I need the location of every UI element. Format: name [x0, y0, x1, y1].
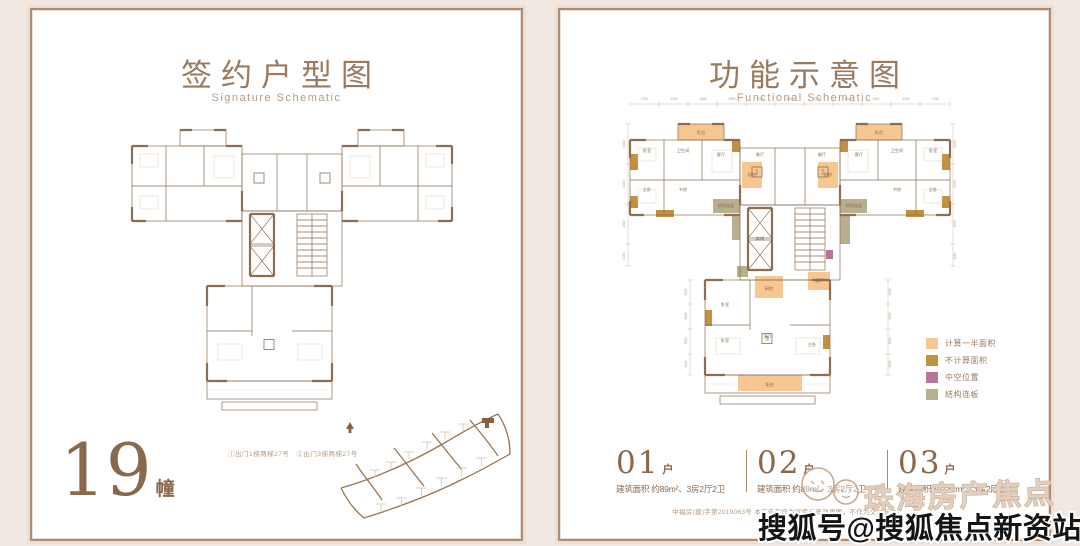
- svg-text:1500: 1500: [888, 360, 892, 367]
- svg-text:书房: 书房: [679, 186, 687, 193]
- legend-swatch-slab: [926, 389, 938, 400]
- unit-number: 01: [616, 445, 659, 481]
- svg-text:1100: 1100: [953, 252, 957, 259]
- svg-text:1750: 1750: [640, 97, 647, 101]
- legend-swatch-void: [926, 372, 938, 383]
- svg-text:主卧: 主卧: [808, 341, 816, 348]
- legend-swatch-half-area: [926, 338, 938, 349]
- svg-text:厨房: 厨房: [765, 285, 773, 292]
- signature-panel-title: 签约户型图: [32, 50, 521, 95]
- svg-text:3900: 3900: [728, 97, 735, 101]
- svg-text:餐厅: 餐厅: [818, 151, 826, 158]
- room-labels: 阳台阳台卧室卧室卫生间卫生间主卧主卧书房书房客厅客厅餐厅餐厅厨房厨房结构连板结构…: [643, 129, 937, 388]
- unit-suffix: 户: [803, 464, 814, 476]
- legend-row: 中空位置: [926, 372, 996, 383]
- svg-text:卫生间: 卫生间: [891, 147, 904, 154]
- unit-info-03: 03户 建筑面积 约132m²、3房2厅2卫: [898, 448, 1018, 495]
- building-number-suffix: 幢: [156, 479, 175, 500]
- svg-text:主卧: 主卧: [929, 186, 937, 193]
- svg-text:2750: 2750: [756, 97, 763, 101]
- svg-text:1400: 1400: [684, 360, 688, 367]
- svg-text:厨房: 厨房: [824, 171, 832, 178]
- signature-panel: 签约户型图 Signature Schematic: [30, 8, 523, 541]
- signature-panel-subtitle: Signature Schematic: [32, 92, 521, 104]
- svg-text:卧室: 卧室: [721, 337, 729, 344]
- svg-text:5400: 5400: [953, 180, 957, 187]
- compass-icon: [346, 422, 354, 433]
- svg-text:3900: 3900: [844, 97, 851, 101]
- functional-panel: 功能示意图 Functional Schematic 1750290016003…: [558, 8, 1051, 541]
- svg-text:客厅: 客厅: [855, 151, 863, 158]
- unit-area: 建筑面积 约89m²、3房2厅2卫: [757, 483, 877, 495]
- disclaimer-text: 中福房(建)字第2019063号 本广告仅作为宣传示意效果图，不作为交付标准。: [608, 506, 968, 516]
- svg-text:阳台: 阳台: [697, 129, 705, 136]
- unit-info-row: 01户 建筑面积 约89m²、3房2厅2卫 02户 建筑面积 约89m²、3房2…: [616, 448, 1018, 495]
- svg-text:1400: 1400: [888, 288, 892, 295]
- legend-label: 计算一半面积: [945, 338, 996, 349]
- svg-text:电梯: 电梯: [756, 235, 764, 242]
- divider: [746, 450, 747, 492]
- svg-text:卧室: 卧室: [721, 301, 729, 308]
- svg-text:1100: 1100: [622, 252, 626, 259]
- unit-area: 建筑面积 约89m²、3房2厅2卫: [616, 483, 736, 495]
- svg-text:1750: 1750: [931, 97, 938, 101]
- unit-suffix: 户: [662, 464, 673, 476]
- svg-text:2900: 2900: [670, 97, 677, 101]
- svg-text:1500: 1500: [622, 220, 626, 227]
- svg-text:主卧: 主卧: [643, 186, 651, 193]
- svg-text:2600: 2600: [684, 312, 688, 319]
- site-plan-map: [336, 400, 516, 522]
- svg-text:阳台: 阳台: [875, 129, 883, 136]
- building-number-value: 19: [60, 428, 152, 512]
- legend-label: 结构连板: [945, 389, 979, 400]
- svg-text:结构连板: 结构连板: [718, 202, 736, 209]
- svg-text:2900: 2900: [902, 97, 909, 101]
- svg-text:1600: 1600: [872, 97, 879, 101]
- svg-text:2150: 2150: [786, 97, 793, 101]
- highlighted-building: [482, 418, 494, 428]
- divider: [887, 450, 888, 492]
- svg-text:2900: 2900: [888, 312, 892, 319]
- svg-text:1400: 1400: [622, 140, 626, 147]
- page: { "colors": { "accent": "#9a7a5e", "wall…: [0, 0, 1080, 546]
- svg-text:书房: 书房: [893, 186, 901, 193]
- building-number: 19幢: [60, 434, 175, 506]
- svg-text:1400: 1400: [953, 140, 957, 147]
- svg-text:卧室: 卧室: [643, 147, 651, 154]
- legend-row: 结构连板: [926, 389, 996, 400]
- legend-row: 不计算面积: [926, 355, 996, 366]
- svg-text:1600: 1600: [699, 97, 706, 101]
- unit-info-01: 01户 建筑面积 约89m²、3房2厅2卫: [616, 448, 736, 495]
- svg-text:卧室: 卧室: [929, 147, 937, 154]
- unit-number: 03: [898, 445, 941, 481]
- svg-text:2600: 2600: [888, 337, 892, 344]
- svg-text:2850: 2850: [684, 337, 688, 344]
- unit-area: 建筑面积 约132m²、3房2厅2卫: [898, 483, 1018, 495]
- svg-text:结构连板: 结构连板: [846, 202, 864, 209]
- svg-text:客厅: 客厅: [717, 151, 725, 158]
- svg-text:5400: 5400: [622, 180, 626, 187]
- functional-floorplan: 1750290016003900275021502750390016002900…: [620, 94, 960, 424]
- svg-text:1500: 1500: [953, 220, 957, 227]
- svg-text:阳台: 阳台: [766, 381, 774, 388]
- functional-panel-title: 功能示意图: [560, 50, 1049, 95]
- unit-number: 02: [757, 445, 800, 481]
- svg-text:餐厅: 餐厅: [815, 277, 823, 284]
- svg-text:1500: 1500: [684, 288, 688, 295]
- legend-swatch-uncounted-area: [926, 355, 938, 366]
- svg-text:卫生间: 卫生间: [677, 147, 690, 154]
- legend-label: 中空位置: [945, 372, 979, 383]
- signature-floorplan: [122, 116, 462, 416]
- legend-row: 计算一半面积: [926, 338, 996, 349]
- svg-text:2750: 2750: [814, 97, 821, 101]
- dimension-numbers: 1750290016003900275021502750390016002900…: [622, 97, 957, 368]
- svg-text:客厅: 客厅: [764, 333, 772, 340]
- legend: 计算一半面积 不计算面积 中空位置 结构连板: [926, 338, 996, 406]
- unit-info-02: 02户 建筑面积 约89m²、3房2厅2卫: [757, 448, 877, 495]
- svg-text:餐厅: 餐厅: [756, 151, 764, 158]
- legend-label: 不计算面积: [945, 355, 988, 366]
- svg-text:厨房: 厨房: [748, 171, 756, 178]
- unit-suffix: 户: [944, 464, 955, 476]
